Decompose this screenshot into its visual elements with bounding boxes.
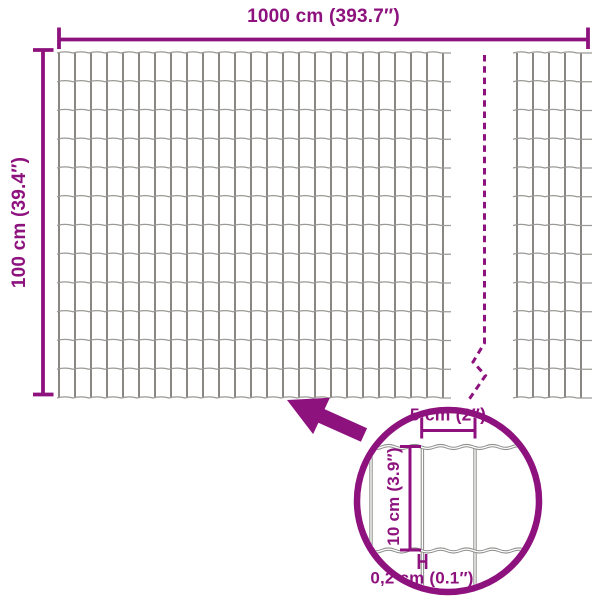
horizontal-wire [513,81,592,82]
detail-pointer-arrow-icon [287,398,367,442]
horizontal-wire [57,339,451,340]
wire-mesh-panels [57,52,592,398]
break-line [469,55,486,400]
height-dimension-label: 100 cm (39.4″) [9,157,30,288]
horizontal-wire [57,224,451,225]
arrow-shape [287,398,367,442]
horizontal-wire [513,224,592,225]
horizontal-wire [513,167,592,168]
fence-dimension-drawing: 1000 cm (393.7″) 100 cm (39.4″) 5 cm (2″… [0,0,600,600]
product-dimension-diagram: 1000 cm (393.7″) 100 cm (39.4″) 5 cm (2″… [0,0,600,600]
width-dimension-line [59,28,588,50]
horizontal-wire [57,368,451,369]
horizontal-wire [513,52,592,53]
horizontal-wire [57,81,451,82]
mesh-panel [513,52,592,398]
horizontal-wire [57,282,451,283]
horizontal-wire [57,311,451,312]
horizontal-wire [513,397,592,398]
horizontal-wire [513,253,592,254]
width-dimension-label: 1000 cm (393.7″) [247,6,400,27]
mesh-panel [57,52,451,398]
horizontal-wire [57,109,451,110]
horizontal-wire [513,282,592,283]
cell-width-label: 5 cm (2″) [410,405,486,425]
horizontal-wire [57,196,451,197]
horizontal-wire [513,196,592,197]
horizontal-wire [57,138,451,139]
horizontal-wire [513,311,592,312]
break-dashes [469,55,486,400]
horizontal-wire [513,109,592,110]
horizontal-wire [57,253,451,254]
horizontal-wire [513,339,592,340]
height-dimension-line [33,50,54,395]
horizontal-wire [57,52,451,53]
horizontal-wire [57,397,451,398]
horizontal-wire [513,138,592,139]
cell-height-label: 10 cm (3.9″) [384,447,403,545]
horizontal-wire [513,368,592,369]
wire-thickness-label: 0,2 cm (0.1″) [370,569,473,588]
horizontal-wire [57,167,451,168]
